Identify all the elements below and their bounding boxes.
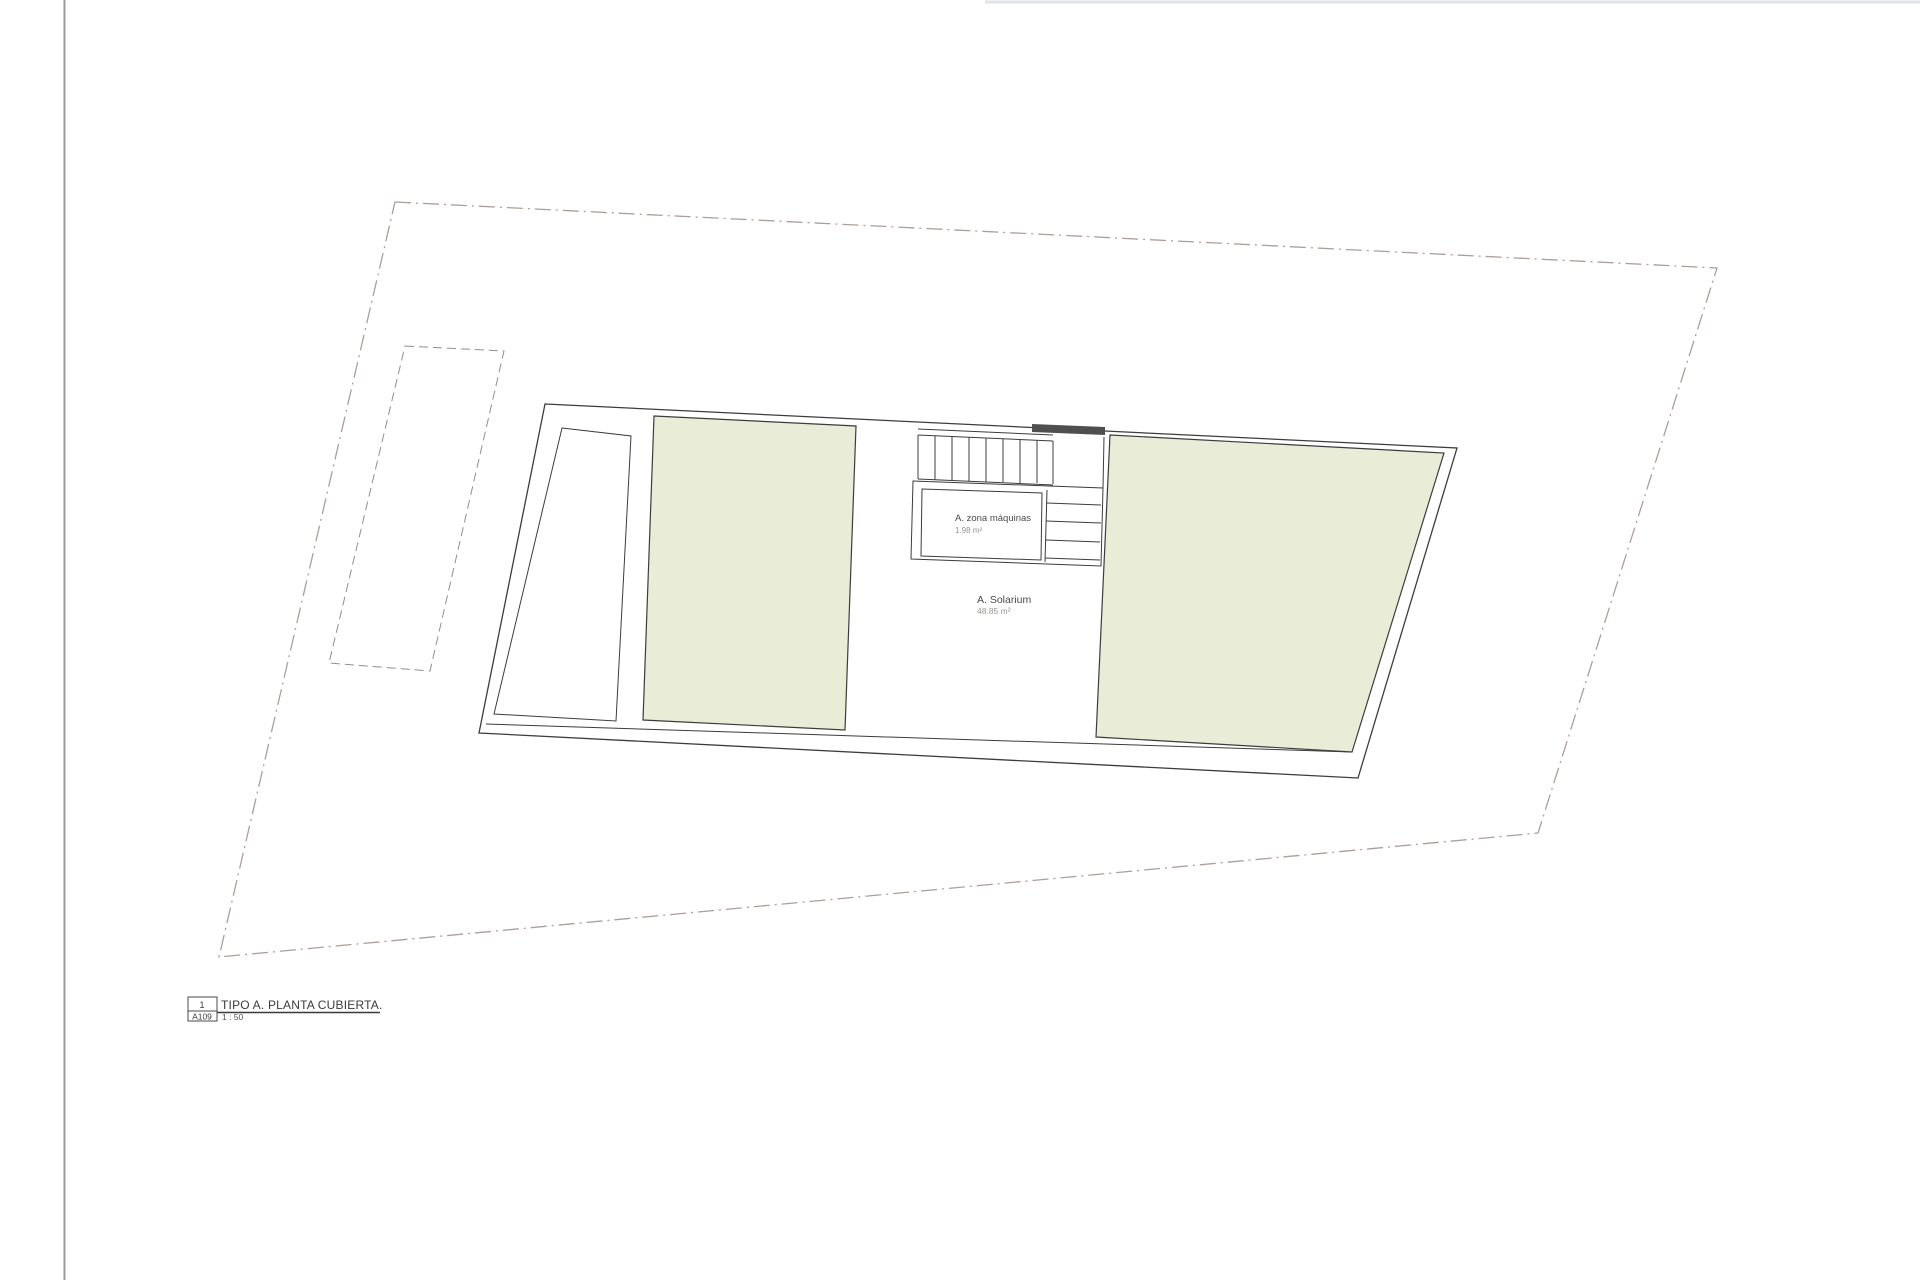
drawing-number: 1 bbox=[199, 1000, 204, 1010]
sheet-code: A109 bbox=[192, 1012, 212, 1022]
machine-room bbox=[921, 489, 1042, 560]
drawing-title: TIPO A. PLANTA CUBIERTA. bbox=[221, 998, 383, 1012]
solarium-area: 48.85 m² bbox=[977, 606, 1011, 616]
solarium-label: A. Solarium bbox=[977, 594, 1032, 606]
floor-plan-canvas: A. zona máquinas 1.98 m² A. Solarium 48.… bbox=[0, 0, 1920, 1280]
machine-room-label: A. zona máquinas bbox=[955, 513, 1031, 524]
left-roof-terrace bbox=[643, 416, 856, 730]
building: A. zona máquinas 1.98 m² A. Solarium 48.… bbox=[479, 404, 1457, 778]
parking-projection-outline bbox=[329, 346, 504, 671]
drawing-sheet: A. zona máquinas 1.98 m² A. Solarium 48.… bbox=[0, 0, 1920, 1280]
machine-room-area: 1.98 m² bbox=[955, 526, 982, 535]
title-block: 1 A109 TIPO A. PLANTA CUBIERTA. 1 : 50 bbox=[188, 997, 383, 1022]
drawing-scale: 1 : 50 bbox=[222, 1012, 244, 1022]
right-roof-terrace bbox=[1096, 435, 1444, 752]
